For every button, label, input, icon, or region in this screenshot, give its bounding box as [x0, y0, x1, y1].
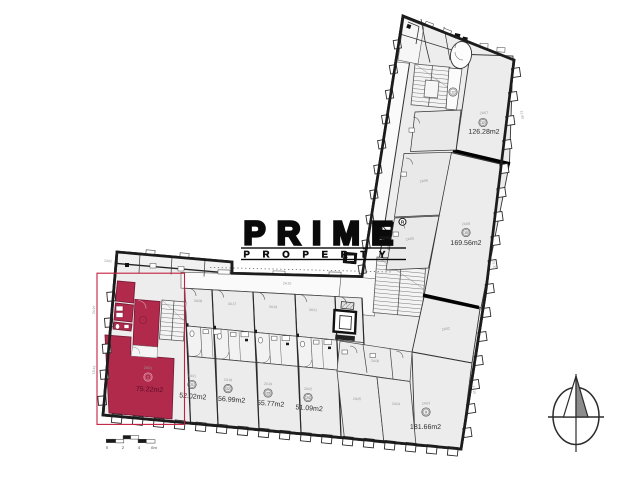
svg-text:6m: 6m: [151, 445, 157, 450]
svg-text:169.56m2: 169.56m2: [450, 240, 481, 247]
svg-text:2A07: 2A07: [480, 111, 489, 115]
svg-text:2A03: 2A03: [422, 401, 431, 405]
svg-text:23: 23: [266, 391, 270, 395]
svg-text:8: 8: [425, 410, 427, 414]
svg-text:75.22m2: 75.22m2: [136, 386, 164, 394]
svg-text:2A10: 2A10: [283, 281, 292, 285]
svg-text:24.97: 24.97: [92, 305, 97, 314]
svg-text:18.42: 18.42: [92, 365, 97, 374]
svg-text:12: 12: [451, 90, 455, 94]
svg-text:2A04: 2A04: [392, 402, 401, 407]
svg-text:3A09: 3A09: [194, 299, 203, 304]
svg-text:22: 22: [226, 387, 230, 391]
svg-text:3A01: 3A01: [188, 374, 197, 379]
svg-text:2A05: 2A05: [353, 397, 362, 402]
svg-text:PRIME: PRIME: [243, 214, 404, 251]
svg-text:2A18: 2A18: [224, 378, 233, 383]
svg-text:21: 21: [190, 383, 194, 387]
svg-text:3A19: 3A19: [269, 305, 278, 310]
svg-text:3A21: 3A21: [309, 308, 318, 313]
svg-text:181.66m2: 181.66m2: [410, 424, 441, 431]
svg-text:2: 2: [147, 375, 149, 379]
svg-text:10: 10: [464, 231, 468, 235]
svg-text:126.28m2: 126.28m2: [468, 129, 499, 136]
svg-text:2A02: 2A02: [304, 387, 313, 392]
svg-text:2A08: 2A08: [462, 222, 471, 226]
svg-text:24: 24: [306, 396, 310, 400]
svg-text:2A01: 2A01: [144, 366, 153, 370]
svg-text:2A19: 2A19: [264, 382, 273, 387]
svg-text:2A06: 2A06: [371, 359, 380, 364]
svg-text:2A02: 2A02: [104, 259, 112, 264]
svg-text:3A17: 3A17: [228, 302, 237, 307]
svg-text:12: 12: [481, 121, 485, 125]
